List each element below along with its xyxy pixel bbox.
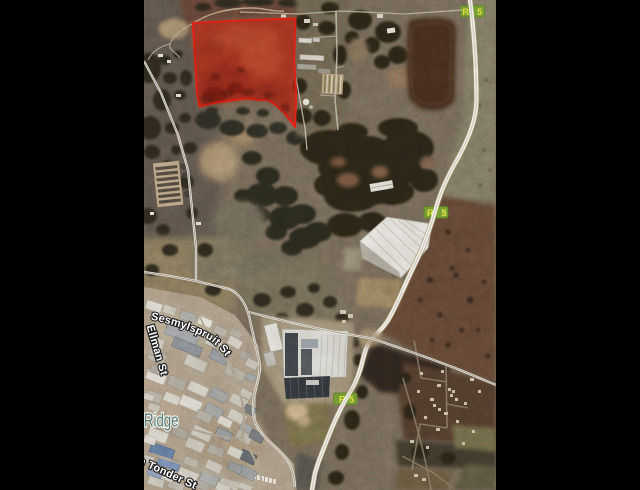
- svg-text:Ridge: Ridge: [144, 410, 179, 431]
